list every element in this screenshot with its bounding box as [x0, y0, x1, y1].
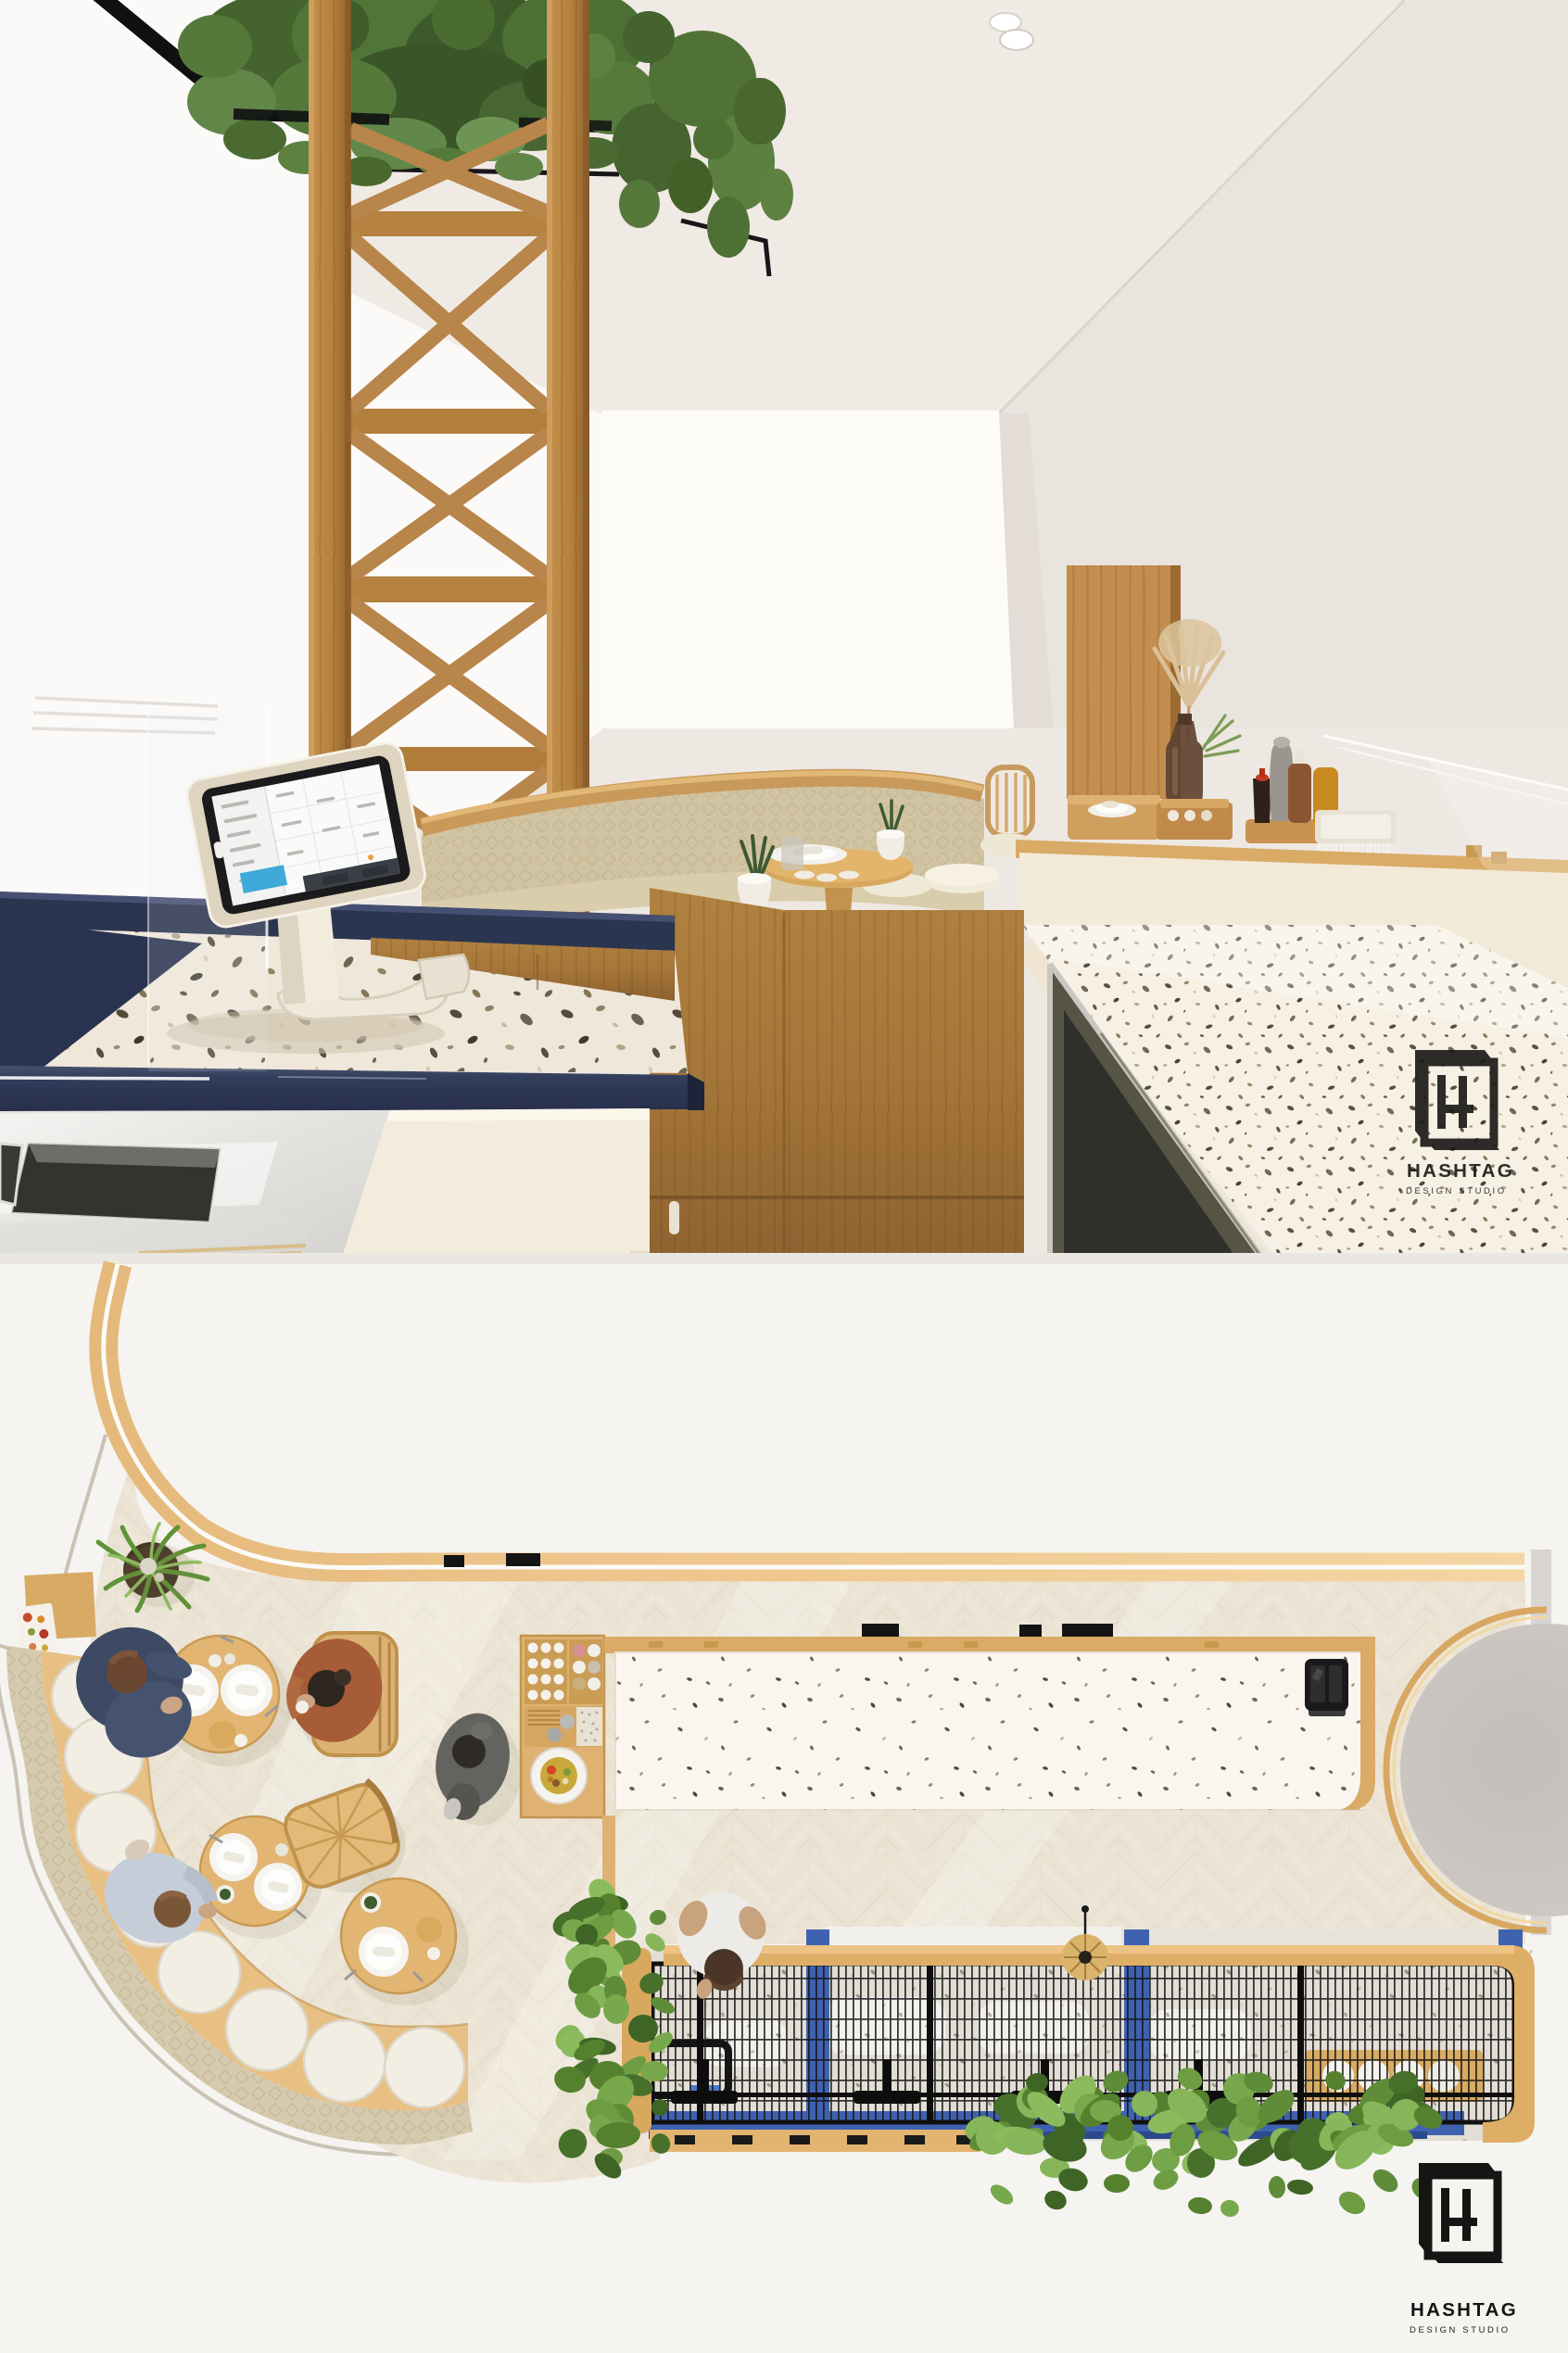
svg-text:DESIGN STUDIO: DESIGN STUDIO — [1406, 1186, 1507, 1196]
svg-text:DESIGN STUDIO: DESIGN STUDIO — [1410, 2325, 1511, 2335]
svg-text:HASHTAG: HASHTAG — [1410, 2299, 1518, 2321]
svg-text:HASHTAG: HASHTAG — [1407, 1160, 1514, 1182]
